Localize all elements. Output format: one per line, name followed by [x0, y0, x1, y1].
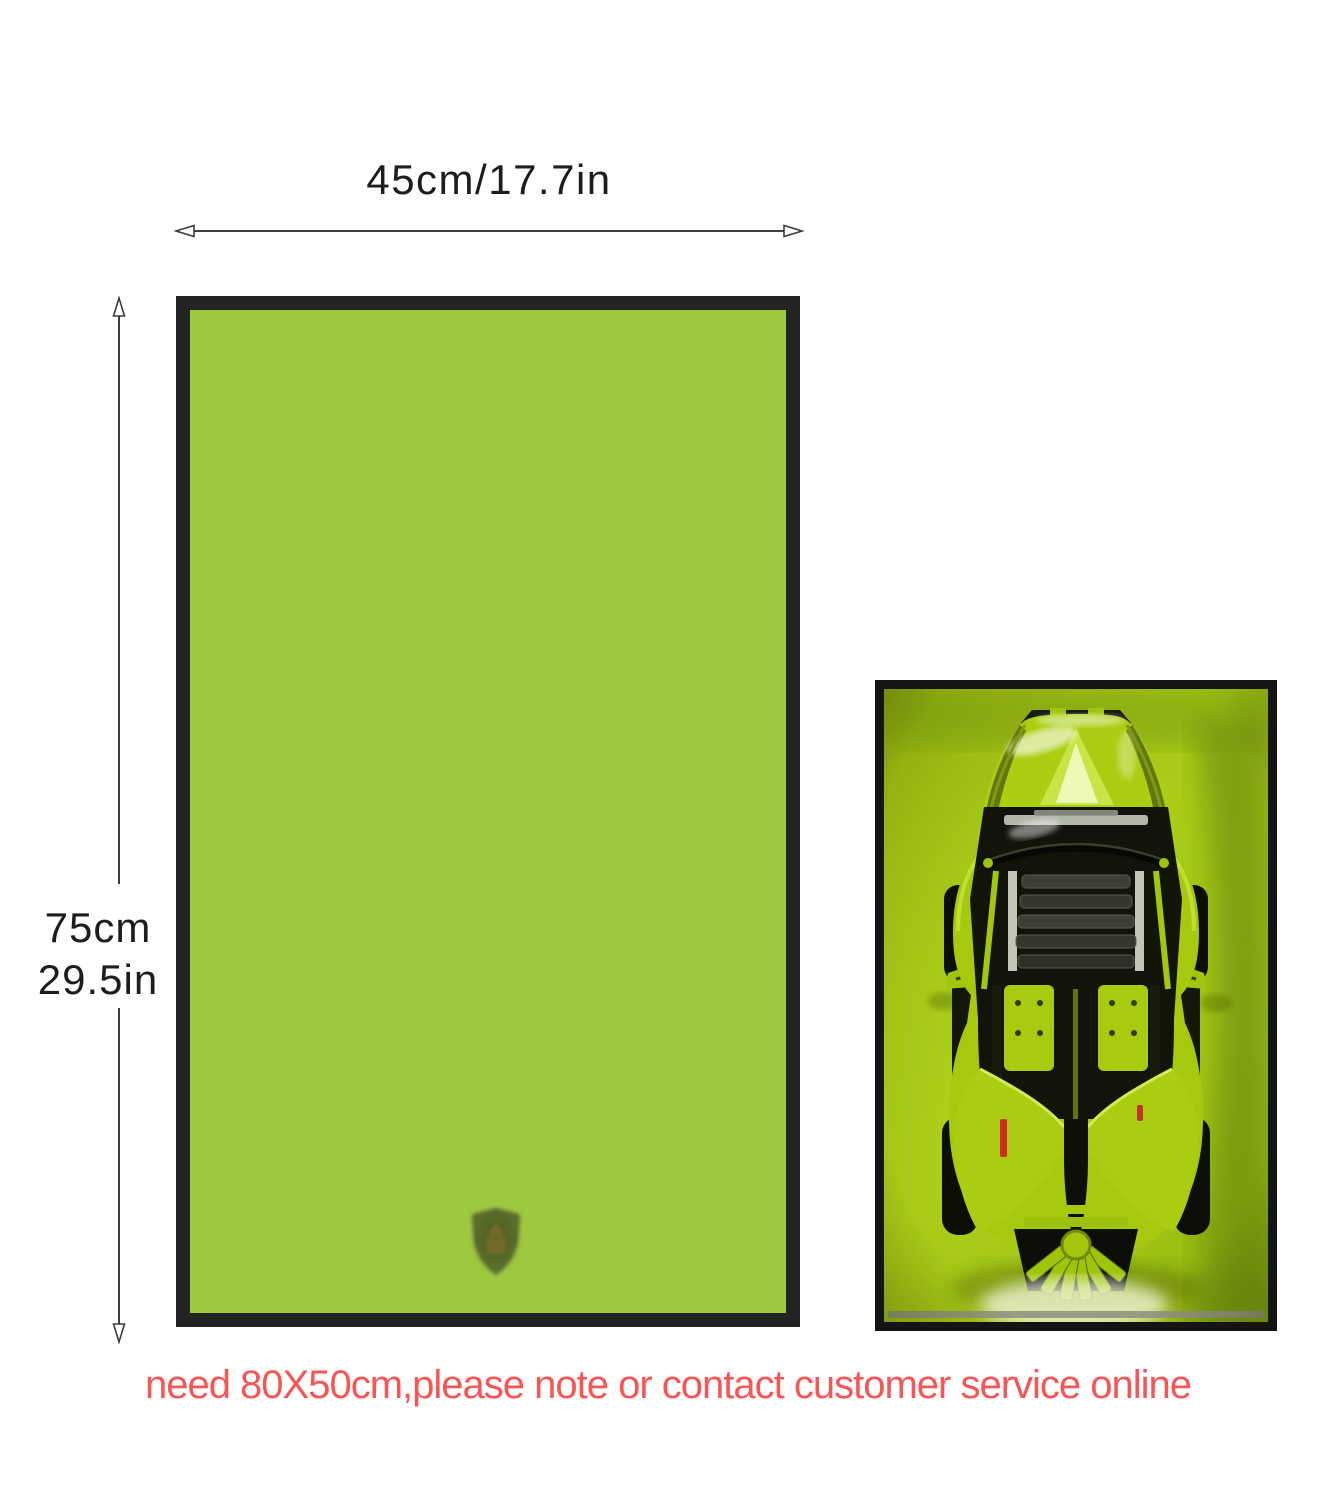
product-photo [875, 680, 1277, 1331]
height-label-inch: 29.5in [8, 954, 188, 1006]
height-double-arrow-icon [110, 296, 128, 1344]
lego-lamborghini-top-view [884, 689, 1268, 1322]
display-case-front-panel [176, 296, 800, 1327]
custom-size-note: need 80X50cm,please note or contact cust… [0, 1363, 1336, 1408]
lamborghini-shield-watermark-icon [458, 1194, 534, 1290]
height-label-cm: 75cm [8, 902, 188, 954]
height-dimension-label: 75cm 29.5in [8, 902, 188, 1006]
width-dimension-label: 45cm/17.7in [176, 156, 802, 204]
product-size-diagram: 45cm/17.7in 75cm 29.5in [0, 0, 1336, 1500]
width-double-arrow-icon [174, 222, 804, 240]
